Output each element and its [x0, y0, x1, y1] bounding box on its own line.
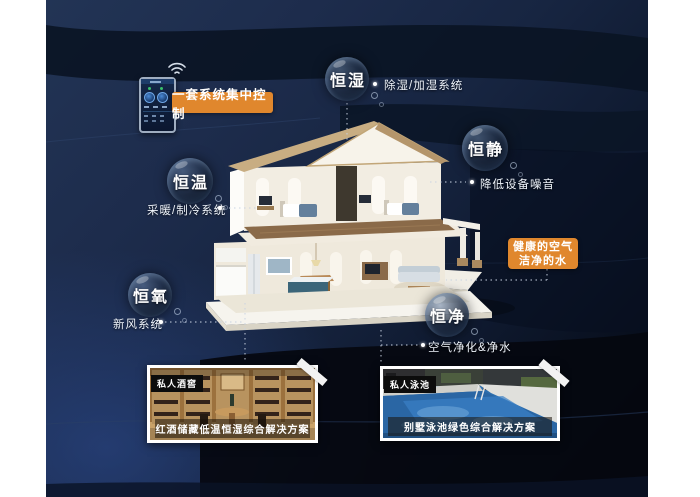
- bubble-label: 恒温: [171, 169, 209, 193]
- note-noise-reduction: 降低设备噪音: [480, 176, 555, 192]
- smart-controller-phone: [139, 77, 176, 133]
- bubble-label: 恒静: [466, 136, 504, 160]
- infographic-canvas: 一套系统集中控制 恒湿 恒静 恒温 恒氧 恒净 除湿/加湿系统 降低设备噪音 采…: [0, 0, 700, 497]
- phone-readout-row: [144, 115, 168, 117]
- card-caption: 别墅泳池绿色综合解决方案: [388, 417, 552, 436]
- bubble-constant-clean: 恒净: [425, 293, 469, 337]
- control-dial: [144, 92, 155, 103]
- bubble-constant-temperature: 恒温: [167, 158, 213, 204]
- note-air-water-purify: 空气净化&净水: [428, 339, 512, 355]
- connector-dot: [218, 206, 222, 210]
- bubble-label: 恒净: [428, 303, 466, 327]
- card-caption: 红酒储藏低温恒湿综合解决方案: [155, 419, 310, 438]
- phone-readout-row: [144, 106, 171, 108]
- card-tag: 私人酒窖: [151, 375, 203, 392]
- status-led: [148, 87, 151, 90]
- bubble-label: 恒湿: [328, 67, 366, 91]
- connector-dot: [373, 82, 377, 86]
- phone-readout-row: [144, 120, 165, 122]
- bubble-label: 恒氧: [131, 283, 169, 307]
- bubble-constant-humidity: 恒湿: [325, 57, 369, 101]
- note-fresh-air: 新风系统: [113, 316, 163, 332]
- highlight-line2: 洁净的水: [519, 254, 567, 268]
- healthy-air-water-label: 健康的空气 洁净的水: [508, 238, 578, 269]
- phone-app-header: [141, 79, 174, 84]
- note-heating-cooling: 采暖/制冷系统: [147, 202, 226, 218]
- bubble-constant-oxygen: 恒氧: [128, 273, 172, 317]
- status-led: [160, 87, 163, 90]
- connector-dot: [470, 180, 474, 184]
- divider: [143, 111, 172, 112]
- bubble-constant-quiet: 恒静: [462, 125, 508, 171]
- wine-cellar-card: 私人酒窖 红酒储藏低温恒湿综合解决方案: [147, 365, 318, 443]
- card-tag: 私人泳池: [384, 376, 436, 393]
- wifi-icon: [166, 58, 188, 76]
- highlight-line1: 健康的空气: [513, 240, 573, 254]
- connector-dot: [159, 320, 163, 324]
- note-dehumidify-system: 除湿/加湿系统: [384, 77, 463, 93]
- connector-dot: [421, 343, 425, 347]
- control-dial: [157, 92, 168, 103]
- central-control-label: 一套系统集中控制: [172, 92, 273, 113]
- pool-card: 私人泳池 别墅泳池绿色综合解决方案: [380, 366, 560, 441]
